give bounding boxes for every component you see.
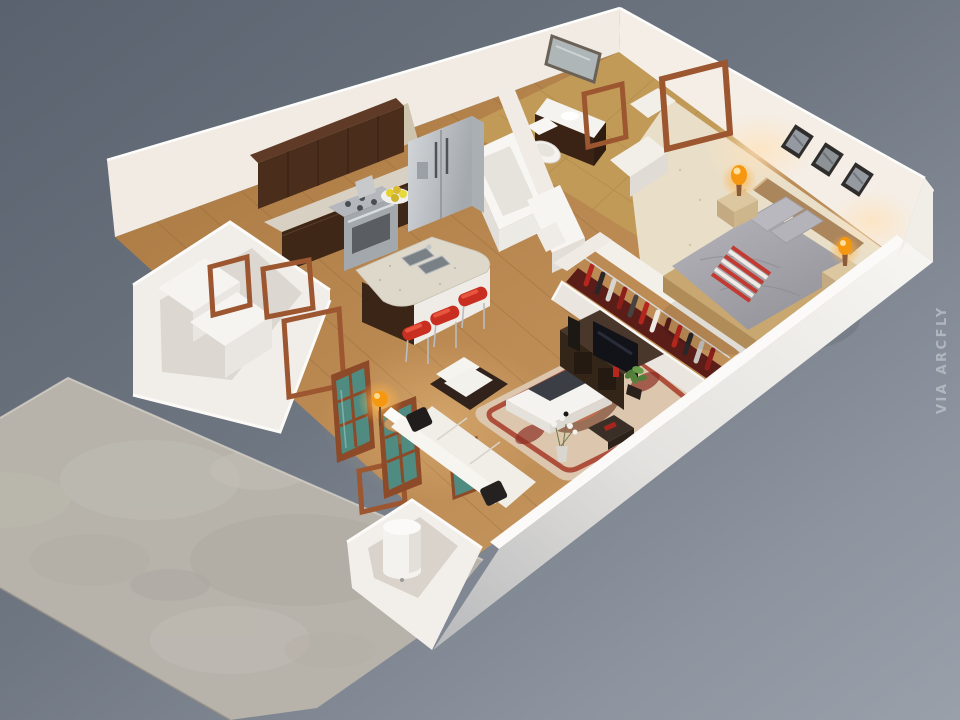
lamp-right xyxy=(829,234,861,266)
island-faucet xyxy=(427,245,432,250)
ice-dispenser xyxy=(417,162,428,179)
speaker xyxy=(568,316,580,352)
watermark: VIA ARCFLY xyxy=(935,305,950,414)
lamp-left xyxy=(721,162,757,198)
floorplan-render: VIA ARCFLY xyxy=(0,0,960,720)
render-canvas: VIA ARCFLY xyxy=(0,0,960,720)
water-heater-cylinder xyxy=(383,519,421,582)
